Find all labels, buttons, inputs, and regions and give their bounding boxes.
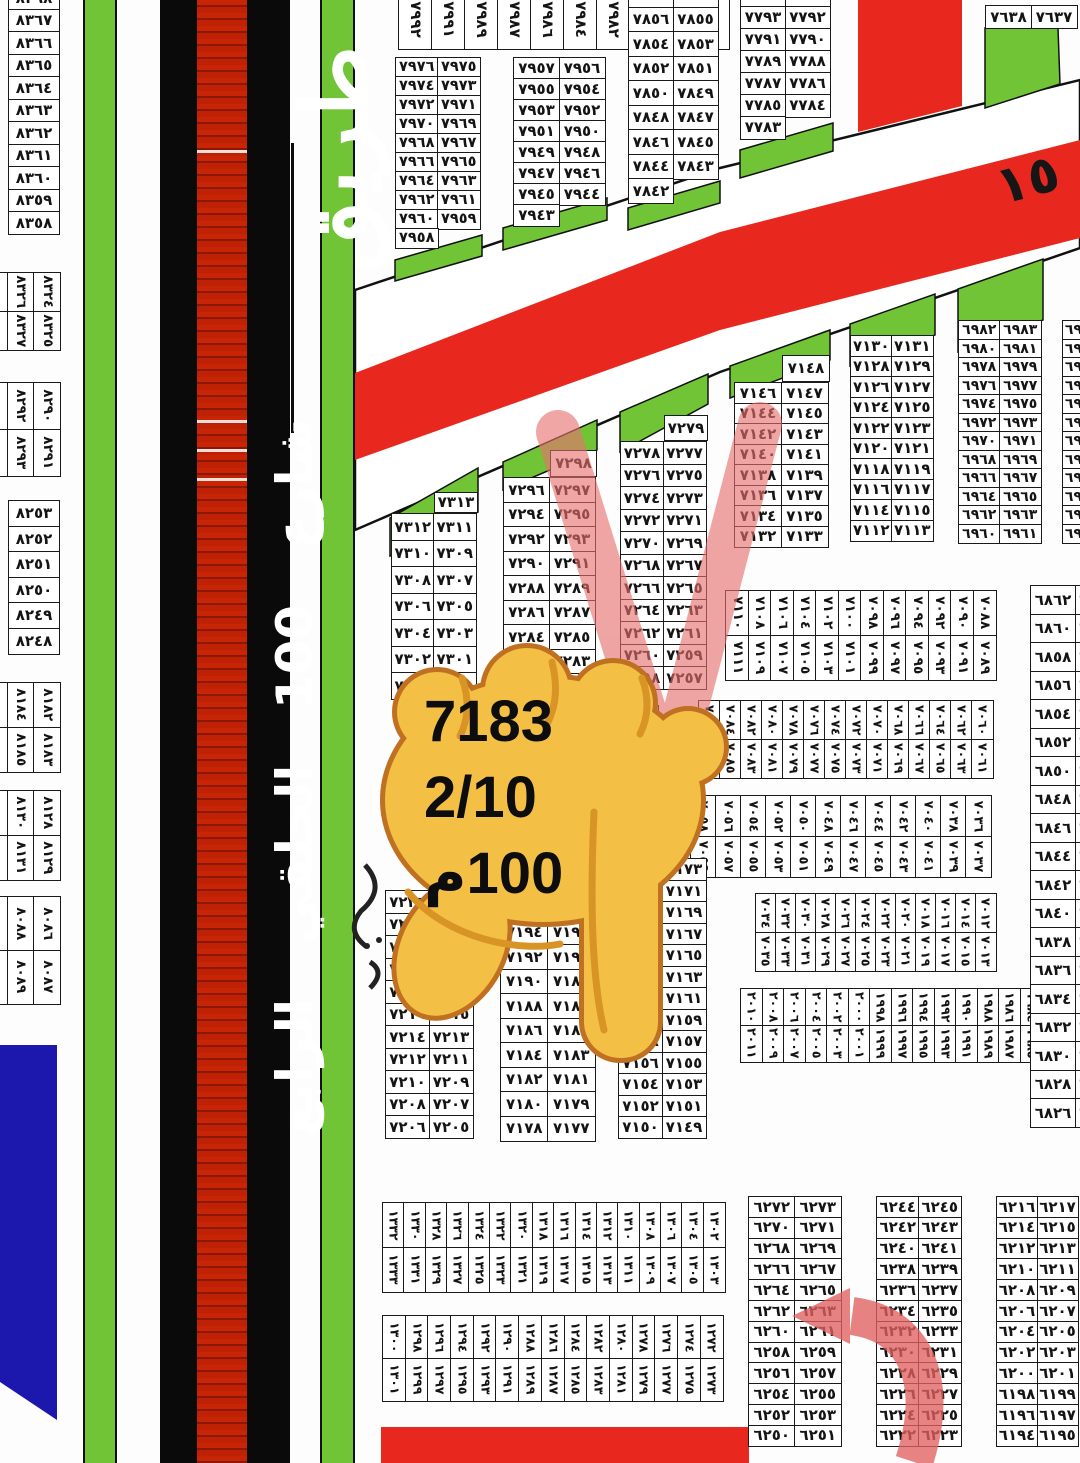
handwritten-note [354,865,382,988]
road-name-label: شارع 100 الحلقي الرابع [266,418,324,1136]
road-name-calligraphy: طريق [281,46,389,272]
annotation-area: 100م [424,836,563,912]
annotation-share: 2/10 [424,760,563,836]
cadastral-map: ٨٣٦٨٨٣٦٧٨٣٦٦٨٣٦٥٨٣٦٤٨٣٦٣٨٣٦٢٨٣٦١٨٣٦٠٨٣٥٩… [0,0,1080,1463]
bent-arrow-overlay [792,1288,925,1462]
plot-annotation: 7183 2/10 100م [424,684,563,912]
annotation-plot-number: 7183 [424,684,563,760]
